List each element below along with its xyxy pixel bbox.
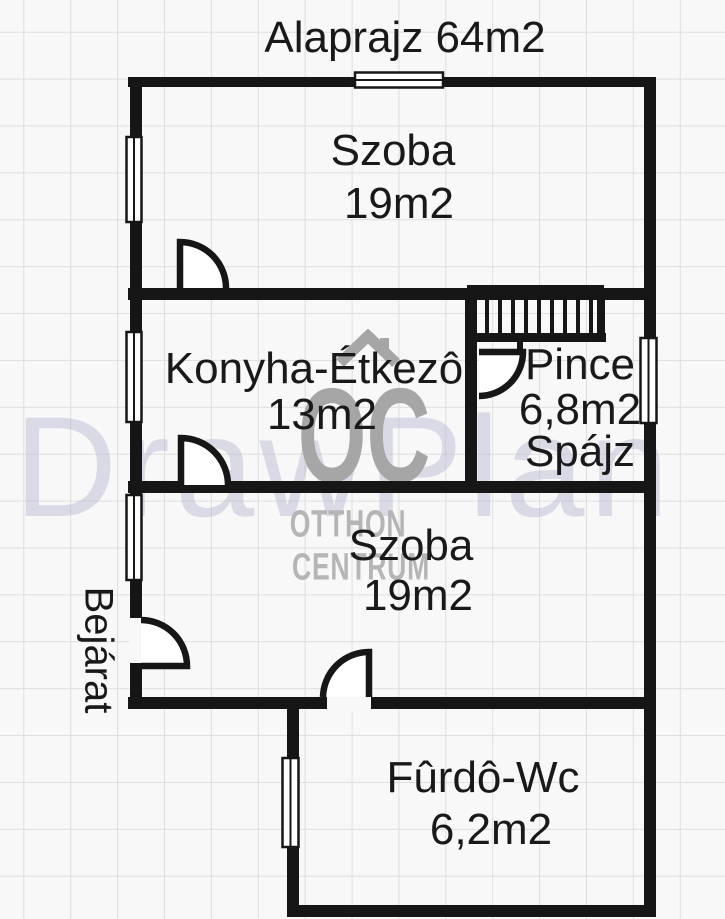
room-area-pince: 6,8m2 <box>519 388 641 432</box>
bathroom-opening <box>327 696 371 711</box>
door-swing-konyha <box>181 438 228 485</box>
room-label-szoba-top: Szoba <box>331 129 456 173</box>
room-label-furdo: Fûrdô-Wc <box>386 756 579 800</box>
wall-divider-3 <box>128 697 656 709</box>
room-area-konyha: 13m2 <box>267 393 377 437</box>
room-area-furdo: 6,2m2 <box>430 808 552 852</box>
window-symbol-left-1 <box>127 137 142 222</box>
door-swing-szoba-bottom <box>323 652 369 697</box>
room-label-szoba-bottom: Szoba <box>349 524 474 568</box>
door-swing-pince <box>479 352 523 396</box>
room-note-spajz: Spájz <box>525 430 635 474</box>
entrance-label: Bejárat <box>76 587 121 714</box>
entrance-opening <box>129 618 143 663</box>
stair-tread-end <box>597 300 605 333</box>
wall-pince-divider <box>465 288 477 493</box>
room-label-pince: Pince <box>525 343 635 387</box>
room-area-szoba-bottom: 19m2 <box>363 574 473 618</box>
window-symbol-left-3 <box>127 495 142 580</box>
floorplan-canvas: DrawPlan OC OTTHON CENTRUM <box>0 0 725 919</box>
door-swing-entrance <box>141 620 187 666</box>
window-symbol-right <box>641 338 657 423</box>
plan-title: Alaprajz 64m2 <box>264 16 545 60</box>
window-symbol-left-2 <box>127 332 142 422</box>
room-area-szoba-top: 19m2 <box>344 182 454 226</box>
room-label-konyha: Konyha-Étkezô <box>165 347 463 391</box>
door-swing-szoba-top <box>180 242 226 288</box>
wall-right <box>644 77 656 917</box>
stairs-top-lip <box>467 285 604 300</box>
window-symbol-top <box>355 73 443 88</box>
window-symbol-bathroom <box>283 758 299 847</box>
wall-bottom <box>287 905 656 917</box>
